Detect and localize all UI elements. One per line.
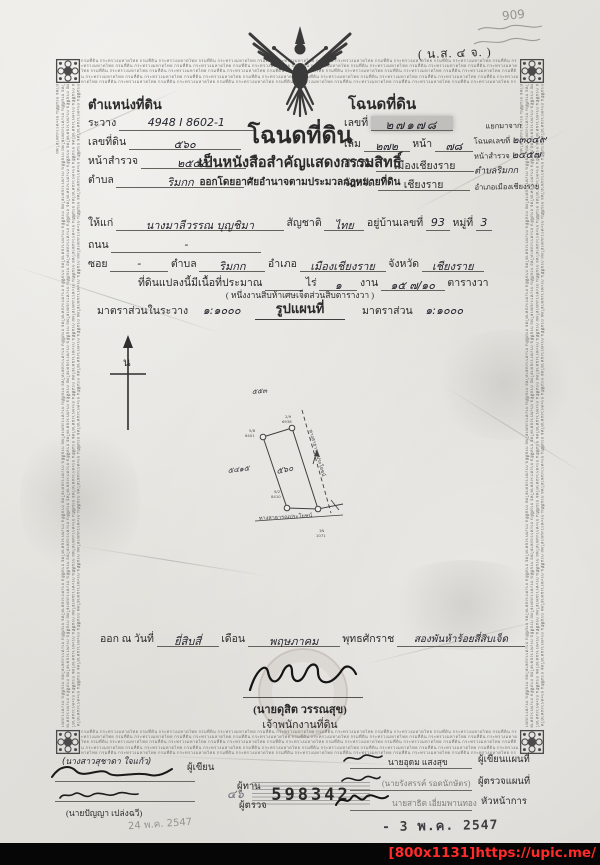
owner-row: ให้แก่ นางมาลีวรรณ บุญชิมา สัญชาติ ไทย อ… bbox=[88, 214, 492, 231]
head-signature bbox=[334, 791, 390, 809]
date-stamp: - 3 พ.ค. 2547 bbox=[382, 814, 499, 837]
signature-line bbox=[55, 781, 195, 782]
officer-signature bbox=[246, 658, 362, 698]
road-value: - bbox=[184, 238, 188, 251]
month-word-label: เดือน bbox=[221, 634, 245, 645]
split-survey-label: หน้าสำรวจ bbox=[474, 151, 510, 161]
north-letter: น bbox=[123, 356, 131, 369]
split-deed-label: โฉนดเลขที่ bbox=[474, 136, 511, 146]
split-deed-value: ๒๓๐๔๙ bbox=[512, 134, 547, 146]
signature-line bbox=[350, 768, 472, 769]
split-from-block: แยกมาจาก โฉนดเลขที่ ๒๓๐๔๙ หน้าสำรวจ ๒๔๕๗… bbox=[473, 117, 560, 194]
survey-marker-top-num: 6938 bbox=[282, 419, 292, 424]
soi-label: ซอย bbox=[88, 259, 108, 270]
scanned-land-deed: 909 ( น.ส. ๔ จ. ) กรมที่ดิน bbox=[0, 0, 600, 865]
wa-label: ตารางวา bbox=[447, 278, 488, 289]
garuda-emblem-icon bbox=[244, 24, 356, 124]
map-checker-signature bbox=[340, 773, 382, 787]
owner-province-value: เชียงราย bbox=[432, 260, 474, 273]
split-amphoe: อำเภอเมืองเชียงราย bbox=[474, 182, 539, 192]
map-section-title: รูปแผนที่ bbox=[255, 298, 345, 320]
serial-pencil-note: ๔๖ bbox=[227, 785, 244, 804]
map-checker-name: (นายรังสรรค์ รอดนักษัตร) bbox=[382, 777, 470, 790]
issue-day-value: ยี่สิบสี่ bbox=[174, 635, 201, 648]
scale-in-sheet: มาตราส่วนในระวาง ๑:๑๐๐๐ bbox=[97, 301, 241, 319]
scale-in-sheet-label: มาตราส่วนในระวาง bbox=[97, 306, 188, 317]
road-label: ถนน bbox=[88, 240, 109, 251]
issue-year-value: สองพันห้าร้อยสี่สิบเจ็ด bbox=[414, 634, 508, 645]
adjacent-parcel-left: ๕๔๑๕ bbox=[227, 463, 251, 475]
head-role: หัวหน้าการ bbox=[481, 794, 527, 809]
parcel-map: ๕๖๐ ๕๔๑๕ ๕๕๓ 2/9 6938 5/8 6401 9/2 8410 … bbox=[225, 380, 400, 575]
split-title: แยกมาจาก bbox=[473, 117, 559, 133]
pencil-number: 909 bbox=[501, 7, 525, 23]
inspector-name: (นายปัญญา เปล่งฉวี) bbox=[66, 806, 142, 820]
split-tambon: ตำบลริมกก bbox=[474, 166, 518, 177]
nationality-value: ไทย bbox=[335, 219, 354, 232]
survey-marker-br-num: 1071 bbox=[316, 533, 326, 538]
map-scale-value: ๑:๑๐๐๐ bbox=[425, 304, 463, 317]
map-scale-label: มาตราส่วน bbox=[362, 306, 413, 317]
road-label-right: ทางสาธารณประโยชน์ bbox=[307, 429, 327, 478]
parcel-number-label: ๕๖๐ bbox=[276, 463, 296, 476]
officer-title: เจ้าพนักงานที่ดิน bbox=[0, 716, 600, 733]
owner-amphoe-value: เมืองเชียงราย bbox=[310, 260, 375, 273]
pencil-date: 24 พ.ค. 2547 bbox=[128, 815, 193, 834]
nationality-label: สัญชาติ bbox=[286, 218, 321, 229]
owner-province-label: จังหวัด bbox=[388, 259, 419, 270]
map-writer-signature bbox=[342, 751, 384, 765]
house-no-value: 93 bbox=[431, 216, 445, 229]
issue-row: ออก ณ วันที่ ยี่สิบสี่ เดือน พฤษภาคม พุท… bbox=[100, 630, 525, 647]
house-no-label: อยู่บ้านเลขที่ bbox=[367, 218, 423, 229]
road-label-bottom: ทางสาธารณประโยชน์ bbox=[259, 511, 313, 522]
inspector-signature bbox=[58, 788, 143, 802]
survey-marker-left-num: 6401 bbox=[245, 433, 255, 438]
rosette-corner-top-right bbox=[519, 58, 545, 84]
owner-tambon-label: ตำบล bbox=[171, 259, 197, 270]
issued-on-label: ออก ณ วันที่ bbox=[100, 634, 154, 645]
split-survey-value: ๒๔๕๗ bbox=[511, 150, 540, 162]
scale-in-sheet-value: ๑:๑๐๐๐ bbox=[203, 304, 241, 317]
era-label: พุทธศักราช bbox=[342, 634, 394, 645]
position-title: ตำแหน่งที่ดิน bbox=[88, 94, 162, 115]
north-arrow-icon: น bbox=[106, 334, 150, 434]
rosette-corner-top-left bbox=[55, 58, 81, 84]
head-name: นายสาธิต เอี่ยมพานทอง bbox=[392, 797, 477, 810]
map-scale: มาตราส่วน ๑:๑๐๐๐ bbox=[362, 301, 463, 319]
signature-line bbox=[243, 697, 363, 698]
deed-block-title: โฉนดที่ดิน bbox=[348, 92, 416, 116]
given-to-label: ให้แก่ bbox=[88, 218, 113, 229]
writer-signature bbox=[50, 763, 175, 783]
survey-marker-bl-num: 8410 bbox=[271, 494, 281, 499]
watermark-url: [800x1131]https://upic.me/ bbox=[389, 845, 596, 861]
road-row: ถนน - bbox=[88, 236, 261, 253]
moo-label: หมู่ที่ bbox=[452, 218, 473, 229]
owner-amphoe-label: อำเภอ bbox=[268, 259, 297, 270]
map-writer-role: ผู้เขียนแผนที่ bbox=[478, 752, 530, 767]
map-checker-role: ผู้ตรวจแผนที่ bbox=[478, 774, 530, 789]
paper-smudge bbox=[430, 330, 580, 440]
soi-row: ซอย - ตำบล ริมกก อำเภอ เมืองเชียงราย จัง… bbox=[88, 255, 484, 272]
map-writer-name: นายอุดม แสงสุข bbox=[388, 755, 448, 769]
owner-name: นางมาลีวรรณ บุญชิมา bbox=[146, 219, 254, 232]
writer-role: ผู้เขียน bbox=[187, 760, 214, 775]
issue-month-value: พฤษภาคม bbox=[269, 635, 318, 648]
scan-black-bar: [800x1131]https://upic.me/ bbox=[0, 843, 600, 865]
signature-line bbox=[350, 810, 472, 811]
signature-line bbox=[55, 801, 195, 802]
owner-tambon-value: ริมกก bbox=[219, 260, 245, 273]
moo-value: 3 bbox=[480, 216, 487, 229]
soi-value: - bbox=[137, 257, 141, 270]
adjacent-parcel-top: ๕๕๓ bbox=[251, 387, 268, 396]
